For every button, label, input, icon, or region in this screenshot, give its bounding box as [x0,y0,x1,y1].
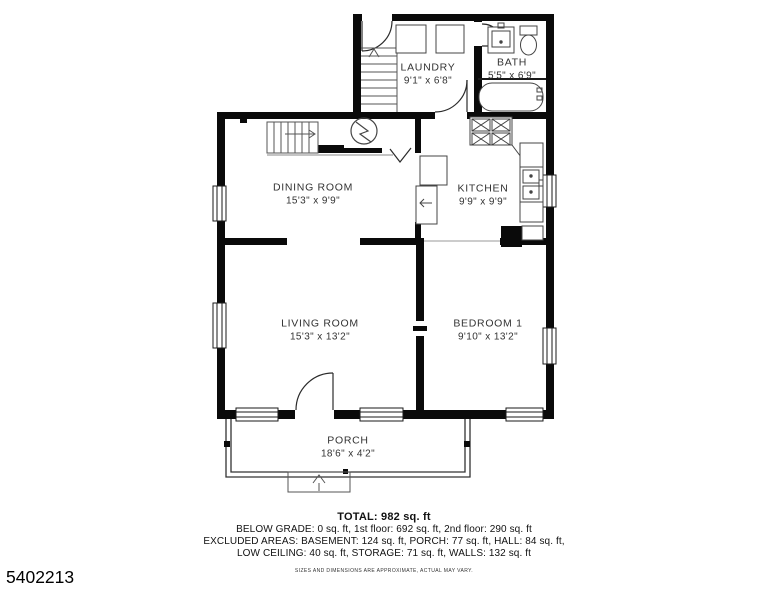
sink-icon [488,23,514,53]
room-name: KITCHEN [458,183,509,196]
room-dims: 9'9" x 9'9" [458,197,509,210]
window [543,328,556,364]
dryer-icon [436,25,464,53]
windows [213,175,556,421]
window [506,408,543,421]
room-label-living: LIVING ROOM 15'3" x 13'2" [281,318,359,345]
door-arc [296,373,333,410]
door-swing-chevron [390,148,411,162]
room-label-porch: PORCH 18'6" x 4'2" [321,435,375,462]
room-name: DINING ROOM [273,182,353,195]
room-name: PORCH [321,435,375,448]
window [543,175,556,207]
chimney [501,226,522,247]
room-name: LIVING ROOM [281,318,359,331]
total-area: TOTAL: 982 sq. ft [0,511,768,523]
room-name: BATH [488,57,536,70]
room-label-laundry: LAUNDRY 9'1" x 6'8" [401,62,456,89]
summary-line-1: BELOW GRADE: 0 sq. ft, 1st floor: 692 sq… [0,524,768,535]
room-dims: 5'5" x 6'9" [488,71,536,84]
toilet-icon [520,26,537,55]
cabinet-icon [416,186,437,224]
room-name: LAUNDRY [401,62,456,75]
window [213,303,226,348]
wall-break-tick [413,326,427,331]
stove-icon [470,117,512,145]
window [360,408,403,421]
floor-plan-page: LAUNDRY 9'1" x 6'8" BATH 5'5" x 6'9" DIN… [0,0,768,594]
cabinet-icon [522,226,543,240]
room-label-kitchen: KITCHEN 9'9" x 9'9" [458,183,509,210]
staircase-upper-icon [361,48,397,112]
room-dims: 15'3" x 9'9" [273,196,353,209]
summary-line-2: EXCLUDED AREAS: BASEMENT: 124 sq. ft, PO… [0,536,768,547]
area-summary: TOTAL: 982 sq. ft BELOW GRADE: 0 sq. ft,… [0,511,768,574]
window [213,186,226,221]
floor-plan-drawing [0,0,768,594]
washer-icon [396,25,426,53]
listing-id: 5402213 [6,567,74,588]
room-dims: 18'6" x 4'2" [321,449,375,462]
fridge-icon [420,156,447,185]
room-dims: 15'3" x 13'2" [281,332,359,345]
light-fixture-icon [351,118,377,144]
summary-line-3: LOW CEILING: 40 sq. ft, STORAGE: 71 sq. … [0,548,768,559]
laundry-fixtures [396,25,464,53]
bathtub-icon [479,83,543,111]
room-label-bedroom: BEDROOM 1 9'10" x 13'2" [453,318,522,345]
room-label-dining: DINING ROOM 15'3" x 9'9" [273,182,353,209]
room-dims: 9'1" x 6'8" [401,76,456,89]
disclaimer-text: SIZES AND DIMENSIONS ARE APPROXIMATE, AC… [0,568,768,574]
porch-steps [288,472,350,492]
room-name: BEDROOM 1 [453,318,522,331]
window [236,408,278,421]
room-label-bath: BATH 5'5" x 6'9" [488,57,536,84]
room-dims: 9'10" x 13'2" [453,332,522,345]
door-arc [362,21,392,51]
